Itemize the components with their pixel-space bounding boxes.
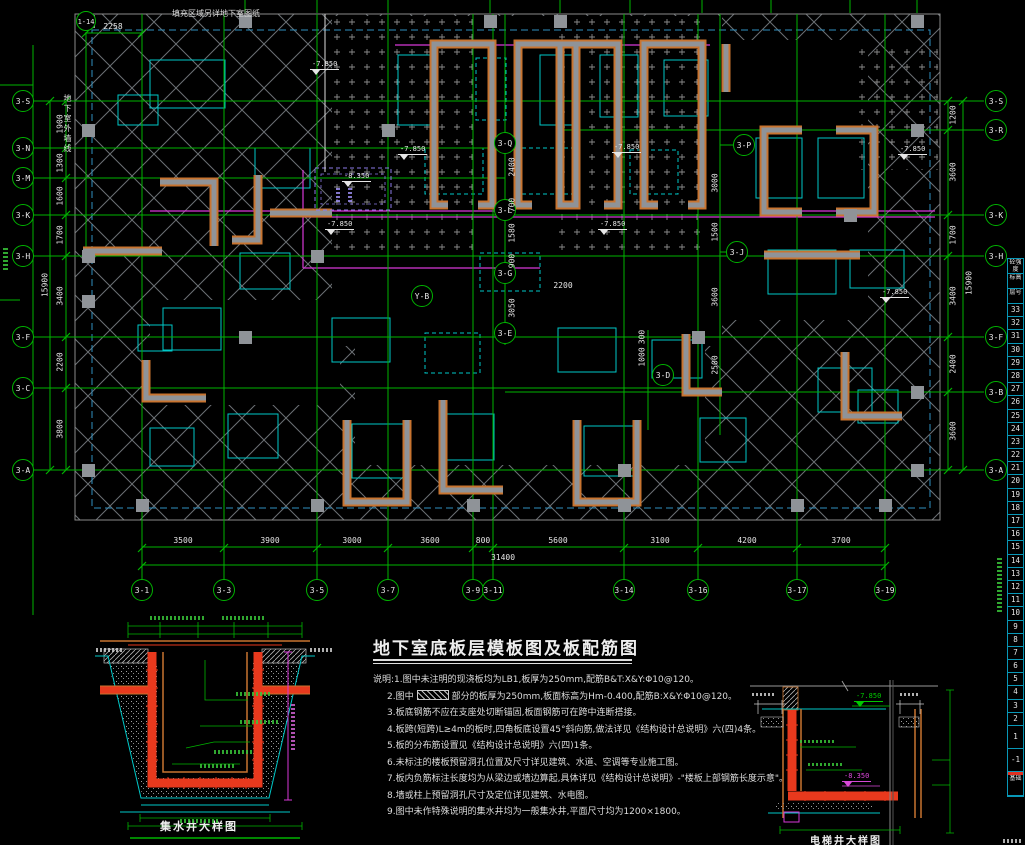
dim-label: 3900 xyxy=(260,536,279,545)
axis-bubble-3-B: 3-B xyxy=(985,381,1007,403)
dim-label: 2200 xyxy=(56,352,65,371)
elevation-triangle-icon xyxy=(844,782,852,787)
elevation-triangle-icon xyxy=(614,153,622,158)
dim-label: 1600 xyxy=(56,186,65,205)
axis-bubble-3-9: 3-9 xyxy=(462,579,484,601)
dim-label: 3600 xyxy=(711,287,720,306)
elevation-value: -7.850 xyxy=(325,220,354,230)
dim-label: 4200 xyxy=(737,536,756,545)
tiny-text xyxy=(900,693,920,696)
elevation-value: -7.850 xyxy=(880,288,909,298)
axis-bubble-3-D: 3-D xyxy=(652,364,674,386)
note-text: 部分的板厚为250mm,板面标高为Hm-0.400,配筋B:X&Y:Φ10@12… xyxy=(452,692,737,702)
dim-total-label: 15900 xyxy=(41,273,50,297)
note-line: 5.板的分布筋设置见《结构设计总说明》六(四)1条。 xyxy=(373,738,703,755)
axis-bubble-3-F: 3-F xyxy=(985,326,1007,348)
elevation-label: -7.850 xyxy=(612,143,641,158)
elevation-value: -7.850 xyxy=(854,692,883,702)
tiny-text xyxy=(800,740,834,743)
elevation-value: -8.350 xyxy=(342,172,371,182)
axis-bubble-3-17: 3-17 xyxy=(786,579,808,601)
floor-strip-cell: 基础 xyxy=(1008,775,1023,796)
axis-bubble-3-K: 3-K xyxy=(12,204,34,226)
floor-strip-cell: 7 xyxy=(1008,647,1023,660)
dim-label: 3000 xyxy=(711,173,720,192)
floor-strip-cell: 8 xyxy=(1008,634,1023,647)
dim-label: 800 xyxy=(476,536,490,545)
note-line: 4.板跨(短跨)L≥4m的板时,四角板底设置45°斜向筋,做法详见《结构设计总说… xyxy=(373,722,703,739)
note-line: 2.图中部分的板厚为250mm,板面标高为Hm-0.400,配筋B:X&Y:Φ1… xyxy=(373,689,703,706)
tiny-text xyxy=(3,248,8,270)
note-line: 3.板底钢筋不应在支座处切断锚固,板面钢筋可在跨中连断搭接。 xyxy=(373,705,703,722)
axis-bubble-1-14: 1-14 xyxy=(76,11,96,31)
tiny-text xyxy=(336,186,340,202)
dim-label: 1700 xyxy=(949,225,958,244)
floor-strip-cell: 26 xyxy=(1008,396,1023,409)
elevation-value: -7.850 xyxy=(310,60,339,70)
floor-strip-cell: 16 xyxy=(1008,528,1023,541)
hatch-swatch xyxy=(417,690,449,700)
dim-label: 700 xyxy=(508,198,517,212)
tiny-text xyxy=(348,186,352,202)
axis-bubble-3-N: 3-N xyxy=(12,137,34,159)
dim-label: 3400 xyxy=(949,286,958,305)
elevation-label: -7.850 xyxy=(598,220,627,235)
elevation-label: -7.850 xyxy=(898,145,927,160)
floor-strip-cell: 15 xyxy=(1008,541,1023,554)
floor-strip-cell: 2 xyxy=(1008,713,1023,726)
note-line: 8.墙或柱上预留洞孔尺寸及定位详见建筑、水电图。 xyxy=(373,788,703,805)
axis-bubble-3-A: 3-A xyxy=(985,459,1007,481)
dim-total-label: 15900 xyxy=(965,271,974,295)
tiny-text xyxy=(752,693,776,696)
tiny-text xyxy=(150,616,206,620)
elevator-detail-caption: 电梯井大样图 xyxy=(810,832,882,845)
sump-pit-detail xyxy=(95,622,315,838)
dim-label: 3600 xyxy=(949,162,958,181)
axis-bubble-3-11: 3-11 xyxy=(482,579,504,601)
elevation-value: -8.350 xyxy=(842,772,871,782)
elevation-label: -8.350 xyxy=(842,772,871,787)
axis-bubble-Y-B: Y-B xyxy=(411,285,433,307)
axis-bubble-3-5: 3-5 xyxy=(306,579,328,601)
axis-bubble-3-3: 3-3 xyxy=(213,579,235,601)
tiny-text xyxy=(310,648,332,652)
outer-wall-label: 地下室外墙线 xyxy=(62,94,73,154)
elevation-triangle-icon xyxy=(856,702,864,707)
dim-label: 1700 xyxy=(56,225,65,244)
drawing-title: 地下室底板层模板图及板配筋图 xyxy=(373,634,639,659)
dim-label: 300 xyxy=(638,330,647,344)
elevation-label: -7.850 xyxy=(854,692,883,707)
dim-label: 1500 xyxy=(711,222,720,241)
floor-strip-cell: 33 xyxy=(1008,304,1023,317)
floor-strip-cell: 11 xyxy=(1008,594,1023,607)
elevation-label: -7.850 xyxy=(398,145,427,160)
dim-label: 3400 xyxy=(56,286,65,305)
elevation-label: -7.850 xyxy=(325,220,354,235)
note-line: 7.板内负筋标注长度均为从梁边或墙边算起,具体详见《结构设计总说明》-"楼板上部… xyxy=(373,771,703,788)
floor-strip-cell: 30 xyxy=(1008,344,1023,357)
axis-bubble-3-K: 3-K xyxy=(985,204,1007,226)
dim-label: 1300 xyxy=(56,153,65,172)
dim-label: 5600 xyxy=(548,536,567,545)
dim-label: 2400 xyxy=(508,157,517,176)
title-underline-2 xyxy=(373,663,632,664)
tiny-text xyxy=(214,750,254,754)
floor-strip-cell: -1 xyxy=(1008,749,1023,772)
axis-bubble-3-A: 3-A xyxy=(12,459,34,481)
axis-bubble-3-7: 3-7 xyxy=(377,579,399,601)
dim-label: 3600 xyxy=(949,421,958,440)
tiny-text xyxy=(240,720,280,724)
tiny-text xyxy=(200,764,234,768)
axis-bubble-3-Q: 3-Q xyxy=(494,132,516,154)
tiny-text xyxy=(222,616,266,620)
floor-strip-cell: 24 xyxy=(1008,423,1023,436)
floor-strip-cell: 层号 xyxy=(1008,289,1023,304)
cad-canvas: 3-S3-N3-M3-K3-H3-F3-C3-A3-S3-R3-K3-H3-F3… xyxy=(0,0,1025,845)
elevation-label: -8.350 xyxy=(342,172,371,187)
dim-label: 3800 xyxy=(56,419,65,438)
floor-strip-cell: 22 xyxy=(1008,449,1023,462)
floor-strip-cell: 4 xyxy=(1008,686,1023,699)
floor-strip-cell: 19 xyxy=(1008,489,1023,502)
dim-label: 3100 xyxy=(650,536,669,545)
floor-strip-cell: 21 xyxy=(1008,462,1023,475)
dim-label: 2258 xyxy=(103,22,122,31)
axis-bubble-3-19: 3-19 xyxy=(874,579,896,601)
elevation-triangle-icon xyxy=(600,230,608,235)
axis-bubble-3-14: 3-14 xyxy=(613,579,635,601)
tiny-text xyxy=(1003,839,1023,843)
floor-strip-cell: 14 xyxy=(1008,555,1023,568)
tiny-text xyxy=(808,763,844,766)
dim-total-label: 31400 xyxy=(491,553,515,562)
floor-strip-cell: 20 xyxy=(1008,475,1023,488)
note-line: 9.图中未作特殊说明的集水井均为一般集水井,平面尺寸均为1200×1800。 xyxy=(373,804,703,821)
tiny-text xyxy=(96,648,122,652)
dim-label: 1580 xyxy=(508,223,517,242)
tiny-text xyxy=(236,692,272,696)
dim-label: 3000 xyxy=(342,536,361,545)
elevation-label: -7.850 xyxy=(880,288,909,303)
floor-strip-cell: 1 xyxy=(1008,726,1023,749)
elevation-triangle-icon xyxy=(882,298,890,303)
dim-label: 2500 xyxy=(711,355,720,374)
floor-level-strip: 砼强度标高层号333231302928272625242322212019181… xyxy=(1007,258,1024,797)
axis-bubble-3-M: 3-M xyxy=(12,167,34,189)
axis-bubble-3-16: 3-16 xyxy=(687,579,709,601)
tiny-text xyxy=(291,704,295,750)
axis-bubble-3-S: 3-S xyxy=(12,90,34,112)
axis-bubble-3-1: 3-1 xyxy=(131,579,153,601)
dim-label: 3600 xyxy=(420,536,439,545)
elevation-triangle-icon xyxy=(400,155,408,160)
floor-strip-cell: 13 xyxy=(1008,568,1023,581)
floor-strip-cell: 18 xyxy=(1008,502,1023,515)
floor-strip-cell: 32 xyxy=(1008,317,1023,330)
floor-strip-cell: 17 xyxy=(1008,515,1023,528)
dim-label: 3050 xyxy=(508,298,517,317)
tiny-text xyxy=(180,819,220,823)
elevation-triangle-icon xyxy=(327,230,335,235)
dim-label: 1200 xyxy=(949,105,958,124)
fill-region-note: 填充区域另详地下室图纸 xyxy=(172,8,260,19)
notes-block: 说明:1.图中未注明的现浇板均为LB1,板厚为250mm,配筋B&T:X&Y:Φ… xyxy=(373,672,703,821)
note-line: 说明:1.图中未注明的现浇板均为LB1,板厚为250mm,配筋B&T:X&Y:Φ… xyxy=(373,672,703,689)
axis-bubble-3-H: 3-H xyxy=(985,245,1007,267)
dim-label: 3700 xyxy=(831,536,850,545)
floor-strip-cell: 23 xyxy=(1008,436,1023,449)
dim-label: 1000 xyxy=(638,347,647,366)
elevation-label: -7.850 xyxy=(310,60,339,75)
tiny-text xyxy=(997,556,1002,612)
floor-strip-cell: 9 xyxy=(1008,621,1023,634)
axis-bubble-3-S: 3-S xyxy=(985,90,1007,112)
dim-label: 900 xyxy=(508,254,517,268)
dim-label: 2400 xyxy=(949,354,958,373)
floor-strip-cell: 12 xyxy=(1008,581,1023,594)
floor-strip-cell: 25 xyxy=(1008,410,1023,423)
floor-strip-cell: 28 xyxy=(1008,370,1023,383)
dim-label: 3500 xyxy=(173,536,192,545)
axis-bubble-3-E: 3-E xyxy=(494,322,516,344)
floor-strip-cell: 3 xyxy=(1008,700,1023,713)
note-line: 6.未标注的楼板预留洞孔位置及尺寸详见建筑、水道、空调等专业施工图。 xyxy=(373,755,703,772)
floor-strip-cell: 5 xyxy=(1008,673,1023,686)
elevation-triangle-icon xyxy=(900,155,908,160)
elevation-triangle-icon xyxy=(312,70,320,75)
elevation-value: -7.850 xyxy=(398,145,427,155)
axis-bubble-3-R: 3-R xyxy=(985,119,1007,141)
axis-bubble-3-F: 3-F xyxy=(12,326,34,348)
floor-strip-cell: 6 xyxy=(1008,660,1023,673)
dim-label: 2200 xyxy=(553,281,572,290)
floor-strip-cell: 31 xyxy=(1008,330,1023,343)
axis-bubble-3-H: 3-H xyxy=(12,245,34,267)
elevation-value: -7.850 xyxy=(598,220,627,230)
floor-strip-cell: 标高 xyxy=(1008,274,1023,289)
floor-strip-cell: 砼强度 xyxy=(1008,259,1023,274)
floor-strip-cell: 29 xyxy=(1008,357,1023,370)
axis-bubble-3-J: 3-J xyxy=(726,241,748,263)
floor-strip-cell: 10 xyxy=(1008,607,1023,620)
title-underline xyxy=(373,659,632,661)
axis-bubble-3-C: 3-C xyxy=(12,377,34,399)
elevation-value: -7.850 xyxy=(898,145,927,155)
elevator-pit-detail xyxy=(750,680,954,845)
elevation-value: -7.850 xyxy=(612,143,641,153)
note-text: 2.图中 xyxy=(387,692,414,702)
floor-strip-cell: 27 xyxy=(1008,383,1023,396)
axis-bubble-3-P: 3-P xyxy=(733,134,755,156)
